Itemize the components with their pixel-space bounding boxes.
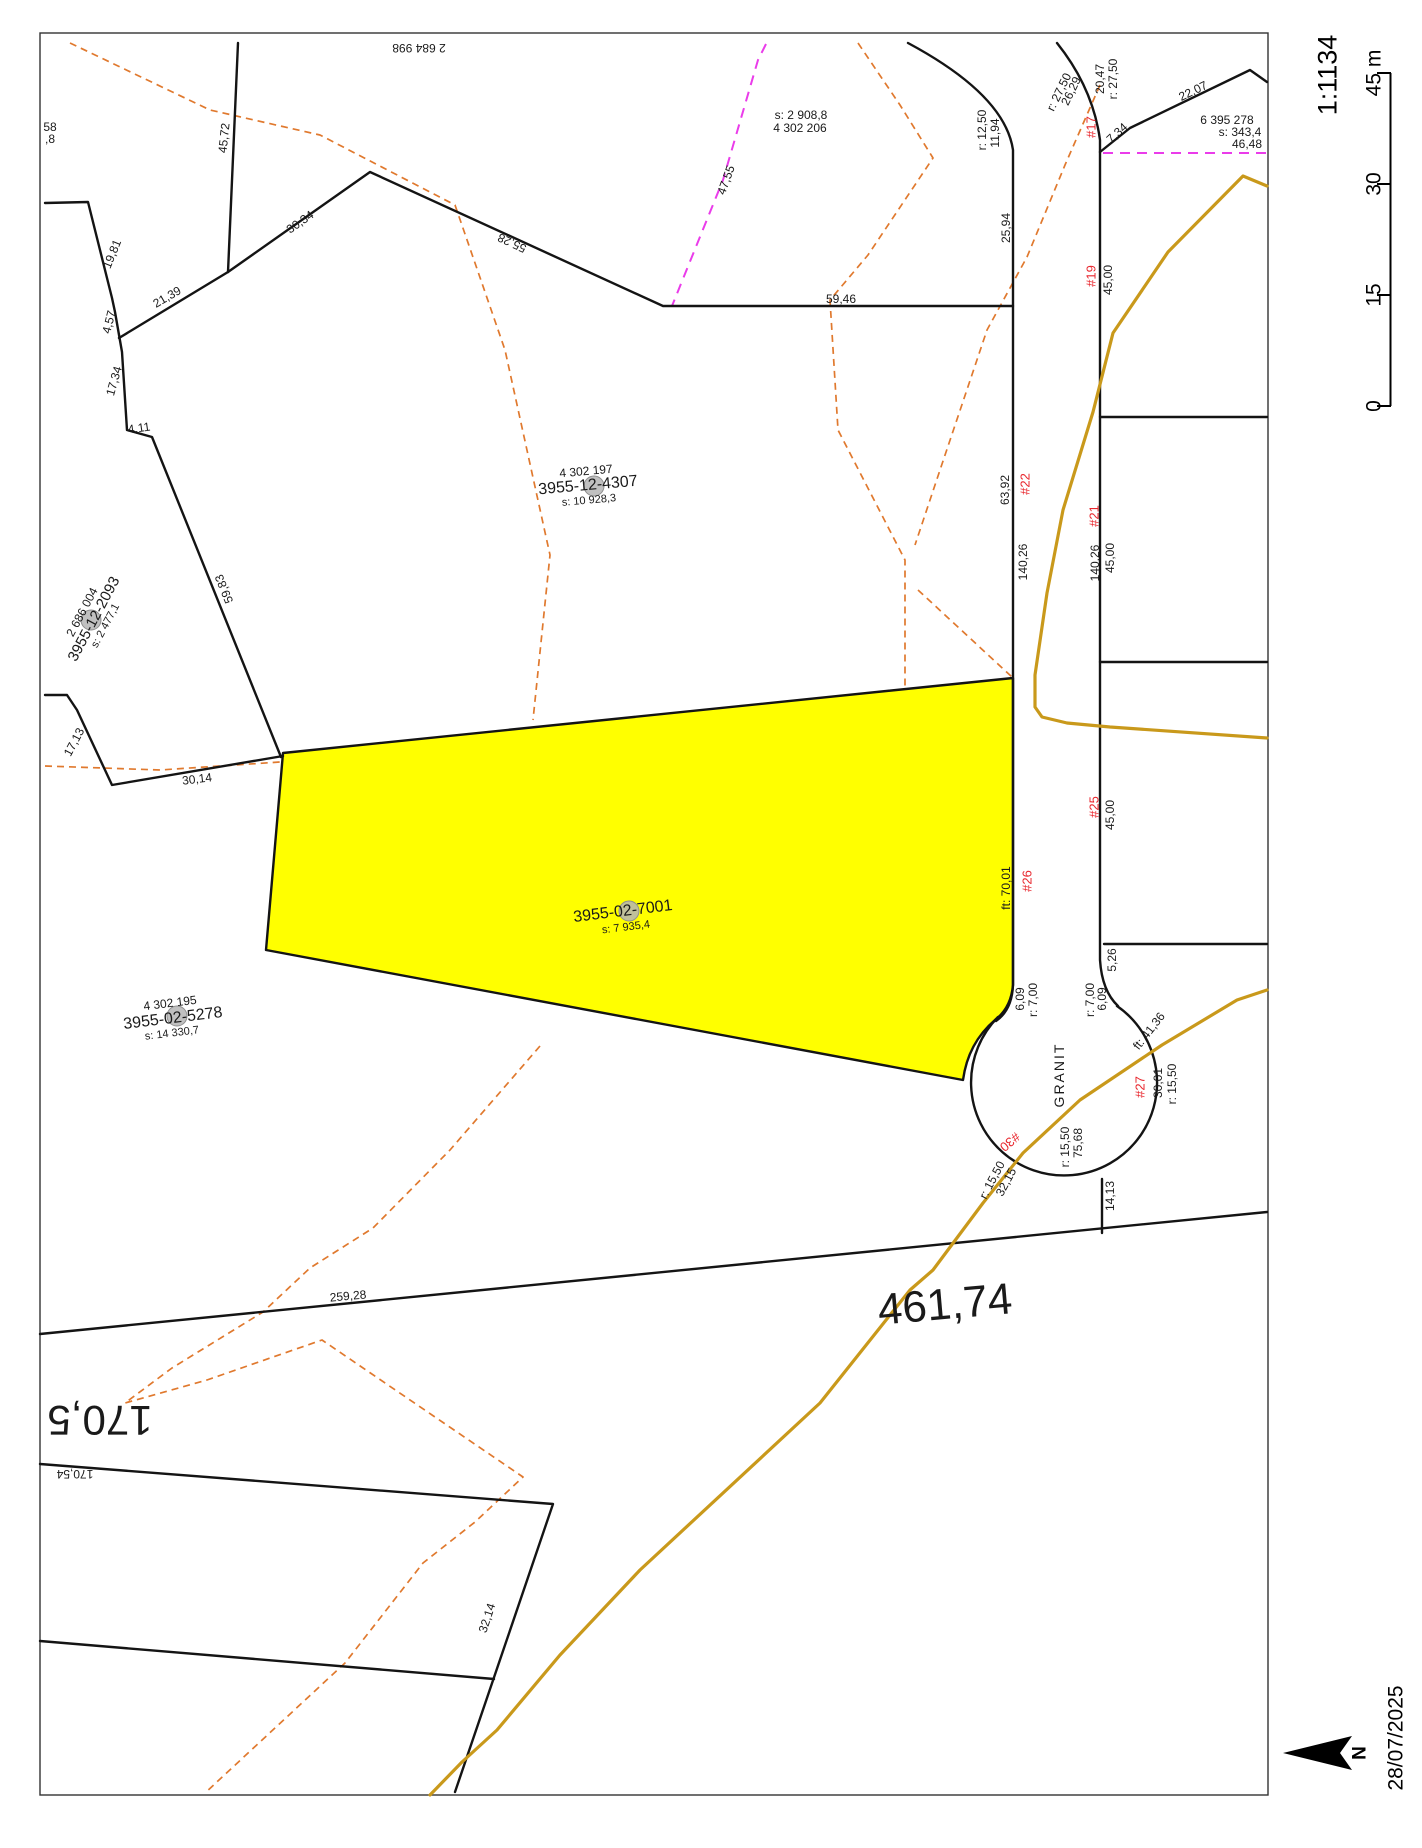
scale-tick-label: 0 bbox=[1364, 400, 1385, 412]
map-date: 28/07/2025 bbox=[1386, 1685, 1407, 1790]
scale-tick-label: 15 bbox=[1364, 283, 1385, 306]
scale-tick-label: 30 bbox=[1364, 172, 1385, 195]
cadastral-map-page: 2 684 99858,845,7219,8130,3421,394,5717,… bbox=[0, 0, 1422, 1848]
scale-tick-label: 45 m bbox=[1364, 50, 1385, 97]
north-label: N bbox=[1351, 1746, 1370, 1760]
scale-tick-labels: 0153045 m bbox=[0, 0, 1422, 1848]
